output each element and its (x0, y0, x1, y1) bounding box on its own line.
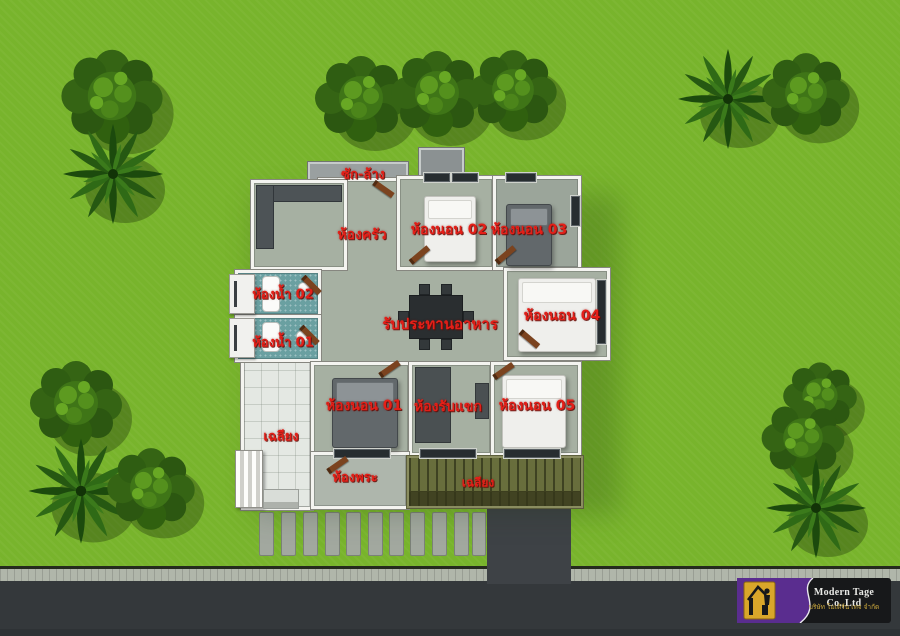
round-tree (315, 56, 417, 151)
palm-tree (29, 439, 136, 544)
label-dining: รับประทานอาหาร (382, 312, 498, 336)
road-bottom-edge (0, 629, 900, 636)
label-bedroom-05: ห้องนอน 05 (499, 395, 575, 417)
label-bedroom-03: ห้องนอน 03 (491, 219, 567, 241)
bed-pillow (522, 282, 592, 303)
label-living: ห้องรับแขก (414, 396, 482, 418)
cabinet-slit (234, 281, 237, 307)
label-bedroom-02: ห้องนอน 02 (411, 219, 487, 241)
round-tree (30, 361, 132, 456)
palm-tree (766, 458, 868, 558)
palm-tree (678, 49, 780, 149)
stepping-stone (281, 512, 296, 556)
window (504, 449, 560, 458)
stepping-stone (368, 512, 383, 556)
stepping-stone (432, 512, 447, 556)
stepping-stone (325, 512, 340, 556)
palm-tree (63, 124, 165, 224)
porch-pergola (407, 456, 583, 508)
stepping-stone (410, 512, 425, 556)
company-name-thai: บริษัท โมเดิร์น เทจ จำกัด (799, 602, 889, 612)
stepping-stone (259, 512, 274, 556)
company-logo: Modern Tage Co.,Ltd บริษัท โมเดิร์น เทจ … (737, 578, 891, 623)
dining-chair (420, 340, 429, 349)
stepping-stone (389, 512, 404, 556)
kitchen-counter-side (257, 186, 273, 248)
stepping-stone (303, 512, 318, 556)
exterior-cabinet (229, 274, 255, 314)
stepping-stone (472, 512, 486, 556)
dining-chair (420, 285, 429, 294)
driveway-path (487, 504, 571, 584)
window (452, 173, 478, 182)
entry-step-pad (263, 489, 299, 509)
exterior-cabinet (229, 318, 255, 358)
round-tree (391, 51, 493, 146)
dining-chair (442, 285, 451, 294)
entry-steps (235, 450, 263, 508)
stepping-stone (454, 512, 469, 556)
stepping-stone (346, 512, 361, 556)
window (571, 196, 580, 226)
label-kitchen: ห้องครัว (337, 224, 386, 246)
label-porch-left: เฉลียง (263, 426, 298, 447)
window (424, 173, 450, 182)
label-prayer: ห้องพระ (332, 467, 377, 488)
round-tree (762, 400, 854, 486)
pergola-lower-band (409, 491, 581, 506)
dining-chair (442, 340, 451, 349)
window (506, 173, 536, 182)
window (420, 449, 476, 458)
round-tree (469, 50, 566, 140)
label-bathroom-01: ห้องน้ำ 01 (252, 332, 314, 353)
label-porch-bottom: เฉลียง (462, 474, 495, 493)
label-bedroom-01: ห้องนอน 01 (326, 395, 402, 417)
site-plan-canvas: ซัก-ล้าง ห้องครัว ห้องนอน 02 ห้องนอน 03 … (0, 0, 900, 636)
round-tree (762, 53, 859, 143)
round-tree (107, 448, 204, 538)
round-tree (61, 50, 173, 155)
round-tree (783, 362, 865, 438)
label-wash-area: ซัก-ล้าง (341, 164, 385, 185)
label-bathroom-02: ห้องน้ำ 02 (252, 284, 314, 305)
bed-pillow (428, 200, 472, 219)
cabinet-slit (234, 325, 237, 351)
label-bedroom-04: ห้องนอน 04 (524, 305, 600, 327)
